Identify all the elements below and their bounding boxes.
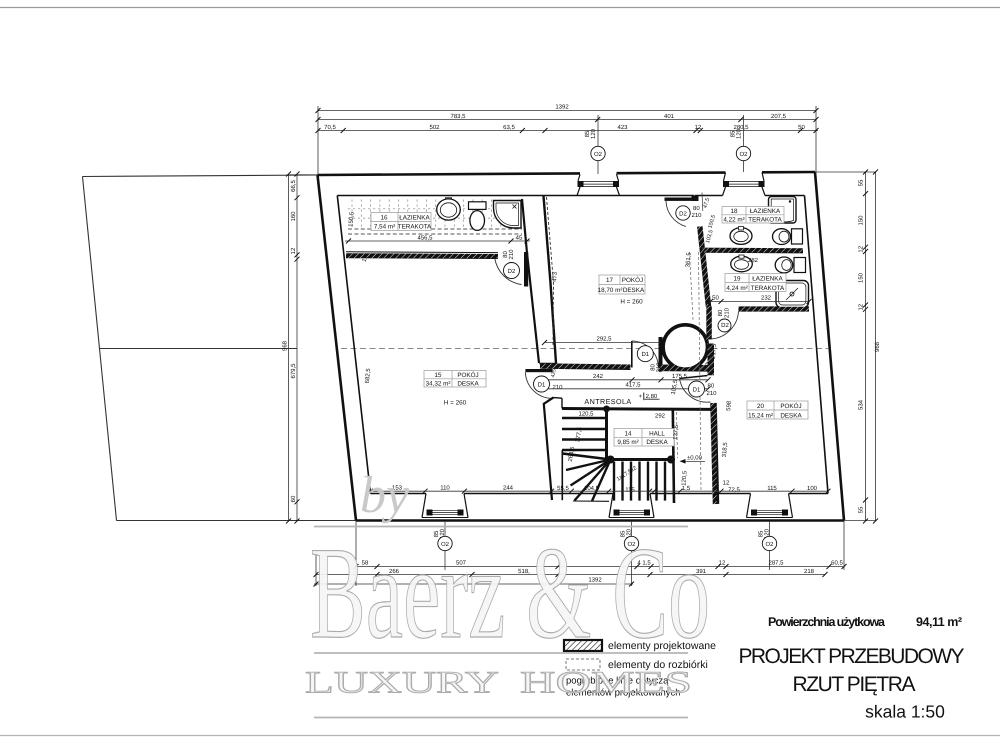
svg-text:50: 50 bbox=[798, 124, 805, 131]
svg-text:120,5: 120,5 bbox=[680, 470, 688, 486]
svg-text:217,5: 217,5 bbox=[710, 343, 718, 359]
svg-text:15,24 m²: 15,24 m² bbox=[748, 412, 773, 419]
svg-text:137,5: 137,5 bbox=[672, 424, 680, 440]
svg-text:4,22 m²: 4,22 m² bbox=[723, 216, 744, 223]
svg-text:7,54 m²: 7,54 m² bbox=[374, 224, 395, 231]
svg-text:45: 45 bbox=[516, 234, 523, 241]
svg-text:60,5: 60,5 bbox=[831, 560, 843, 567]
svg-text:D1: D1 bbox=[538, 382, 546, 389]
svg-text:210: 210 bbox=[553, 384, 564, 391]
svg-text:783,5: 783,5 bbox=[450, 113, 466, 120]
svg-text:skala 1:50: skala 1:50 bbox=[865, 702, 945, 722]
svg-text:423: 423 bbox=[617, 124, 628, 131]
svg-text:TERAKOTA: TERAKOTA bbox=[398, 224, 432, 231]
svg-text:210: 210 bbox=[707, 390, 718, 397]
svg-text:218: 218 bbox=[804, 568, 815, 575]
svg-text:70,5: 70,5 bbox=[324, 124, 336, 131]
svg-text:100: 100 bbox=[807, 485, 818, 492]
svg-text:968: 968 bbox=[874, 341, 881, 352]
svg-text:318,5: 318,5 bbox=[721, 441, 729, 457]
svg-text:150,5: 150,5 bbox=[347, 211, 355, 227]
svg-text:12: 12 bbox=[290, 247, 297, 254]
svg-text:85: 85 bbox=[730, 130, 737, 137]
svg-text:80: 80 bbox=[708, 383, 715, 390]
svg-text:72,5: 72,5 bbox=[728, 487, 740, 494]
svg-text:292: 292 bbox=[655, 413, 666, 420]
svg-text:+: + bbox=[639, 394, 643, 400]
svg-text:12: 12 bbox=[695, 124, 702, 131]
svg-text:12: 12 bbox=[858, 245, 865, 252]
svg-text:18,70 m²: 18,70 m² bbox=[598, 287, 623, 294]
svg-text:H = 260: H = 260 bbox=[444, 400, 467, 407]
svg-text:PROJEKT PRZEBUDOWY: PROJEKT PRZEBUDOWY bbox=[739, 645, 965, 668]
svg-text:DESKA: DESKA bbox=[780, 412, 802, 419]
svg-text:HALL: HALL bbox=[649, 430, 665, 437]
svg-text:232: 232 bbox=[761, 295, 772, 302]
svg-text:150: 150 bbox=[858, 215, 865, 226]
svg-text:D1: D1 bbox=[693, 387, 701, 394]
svg-text:85: 85 bbox=[758, 530, 765, 537]
svg-text:160: 160 bbox=[290, 211, 297, 222]
svg-text:D2: D2 bbox=[679, 211, 687, 218]
svg-text:34,32 m²: 34,32 m² bbox=[426, 380, 451, 387]
svg-text:55: 55 bbox=[858, 179, 865, 186]
svg-text:120: 120 bbox=[736, 128, 743, 139]
svg-text:POKÓJ: POKÓJ bbox=[457, 371, 478, 379]
svg-text:115: 115 bbox=[767, 485, 777, 492]
svg-text:292,5: 292,5 bbox=[596, 335, 612, 342]
svg-text:63,5: 63,5 bbox=[503, 124, 515, 131]
svg-text:175,5: 175,5 bbox=[672, 373, 688, 380]
svg-text:O2: O2 bbox=[594, 151, 603, 158]
svg-text:50: 50 bbox=[712, 295, 719, 302]
svg-text:ŁAZIENKA: ŁAZIENKA bbox=[752, 276, 783, 283]
svg-text:D2: D2 bbox=[508, 268, 516, 275]
svg-text:55: 55 bbox=[858, 506, 865, 513]
svg-text:473: 473 bbox=[551, 271, 559, 282]
svg-text:D2: D2 bbox=[721, 322, 729, 329]
svg-text:±0,00: ±0,00 bbox=[687, 455, 703, 462]
svg-text:244: 244 bbox=[503, 484, 514, 491]
svg-text:115: 115 bbox=[625, 487, 635, 494]
svg-text:66,5: 66,5 bbox=[290, 180, 297, 192]
svg-text:80: 80 bbox=[693, 205, 700, 212]
svg-text:12: 12 bbox=[858, 303, 865, 310]
svg-text:ŁAZIENKA: ŁAZIENKA bbox=[750, 208, 781, 215]
svg-text:968: 968 bbox=[281, 340, 288, 351]
svg-text:80: 80 bbox=[717, 309, 724, 316]
svg-text:20: 20 bbox=[757, 403, 765, 410]
svg-text:15: 15 bbox=[434, 372, 442, 379]
svg-text:DESKA: DESKA bbox=[457, 380, 479, 387]
svg-text:85: 85 bbox=[584, 130, 591, 137]
svg-text:ANTRESOLA: ANTRESOLA bbox=[584, 397, 631, 406]
svg-text:282: 282 bbox=[748, 257, 759, 264]
svg-text:417,5: 417,5 bbox=[625, 382, 641, 389]
svg-text:150: 150 bbox=[858, 272, 865, 283]
svg-text:401: 401 bbox=[664, 113, 675, 120]
svg-text:80: 80 bbox=[650, 364, 657, 371]
svg-text:1392: 1392 bbox=[555, 104, 569, 111]
svg-text:210: 210 bbox=[656, 362, 663, 373]
svg-text:14: 14 bbox=[624, 430, 632, 437]
svg-text:POKÓJ: POKÓJ bbox=[622, 276, 643, 284]
svg-text:55,5: 55,5 bbox=[557, 485, 569, 492]
svg-text:60: 60 bbox=[290, 495, 297, 502]
svg-text:210: 210 bbox=[692, 212, 703, 219]
svg-text:O2: O2 bbox=[739, 151, 748, 158]
svg-text:17: 17 bbox=[606, 277, 614, 284]
svg-text:210: 210 bbox=[724, 307, 731, 318]
svg-text:H = 260: H = 260 bbox=[620, 299, 643, 306]
svg-text:12: 12 bbox=[723, 480, 730, 487]
svg-text:ŁAZIENKA: ŁAZIENKA bbox=[399, 215, 430, 222]
svg-text:456,5: 456,5 bbox=[417, 234, 433, 241]
svg-text:94,11 m²: 94,11 m² bbox=[916, 615, 962, 629]
svg-text:110: 110 bbox=[440, 484, 450, 491]
svg-text:361,5: 361,5 bbox=[684, 251, 692, 267]
svg-text:210: 210 bbox=[508, 249, 515, 260]
svg-text:18: 18 bbox=[730, 208, 738, 215]
svg-text:O2: O2 bbox=[765, 541, 774, 548]
svg-text:4,24 m²: 4,24 m² bbox=[726, 285, 747, 292]
svg-text:679,5: 679,5 bbox=[290, 363, 297, 379]
svg-text:207,5: 207,5 bbox=[771, 113, 787, 120]
svg-text:POKÓJ: POKÓJ bbox=[780, 402, 801, 410]
svg-text:TERAKOTA: TERAKOTA bbox=[748, 216, 782, 223]
svg-text:Powierzchnia użytkowa: Powierzchnia użytkowa bbox=[768, 615, 886, 629]
svg-text:DESKA: DESKA bbox=[623, 287, 645, 294]
svg-text:242: 242 bbox=[593, 373, 604, 380]
svg-text:D1: D1 bbox=[641, 351, 649, 358]
svg-text:80: 80 bbox=[502, 251, 509, 258]
svg-text:598: 598 bbox=[725, 400, 733, 411]
svg-text:502: 502 bbox=[429, 124, 440, 131]
svg-text:9,85 m²: 9,85 m² bbox=[617, 439, 638, 446]
svg-text:287,5: 287,5 bbox=[768, 560, 784, 567]
svg-text:12: 12 bbox=[719, 560, 726, 567]
svg-text:16: 16 bbox=[380, 215, 388, 222]
svg-text:TERAKOTA: TERAKOTA bbox=[751, 285, 785, 292]
svg-text:534: 534 bbox=[858, 399, 865, 410]
svg-text:LUXURY: LUXURY bbox=[305, 665, 499, 700]
svg-text:Baerz & Co: Baerz & Co bbox=[310, 519, 710, 666]
svg-text:120,5: 120,5 bbox=[578, 411, 594, 418]
svg-text:RZUT PIĘTRA: RZUT PIĘTRA bbox=[793, 673, 916, 696]
svg-text:by: by bbox=[360, 467, 410, 524]
svg-text:104,5: 104,5 bbox=[584, 485, 600, 492]
svg-text:682,5: 682,5 bbox=[364, 367, 372, 383]
svg-text:19: 19 bbox=[733, 276, 741, 283]
svg-text:120: 120 bbox=[590, 128, 597, 139]
svg-text:HOMES: HOMES bbox=[520, 665, 692, 700]
svg-text:DESKA: DESKA bbox=[646, 439, 668, 446]
